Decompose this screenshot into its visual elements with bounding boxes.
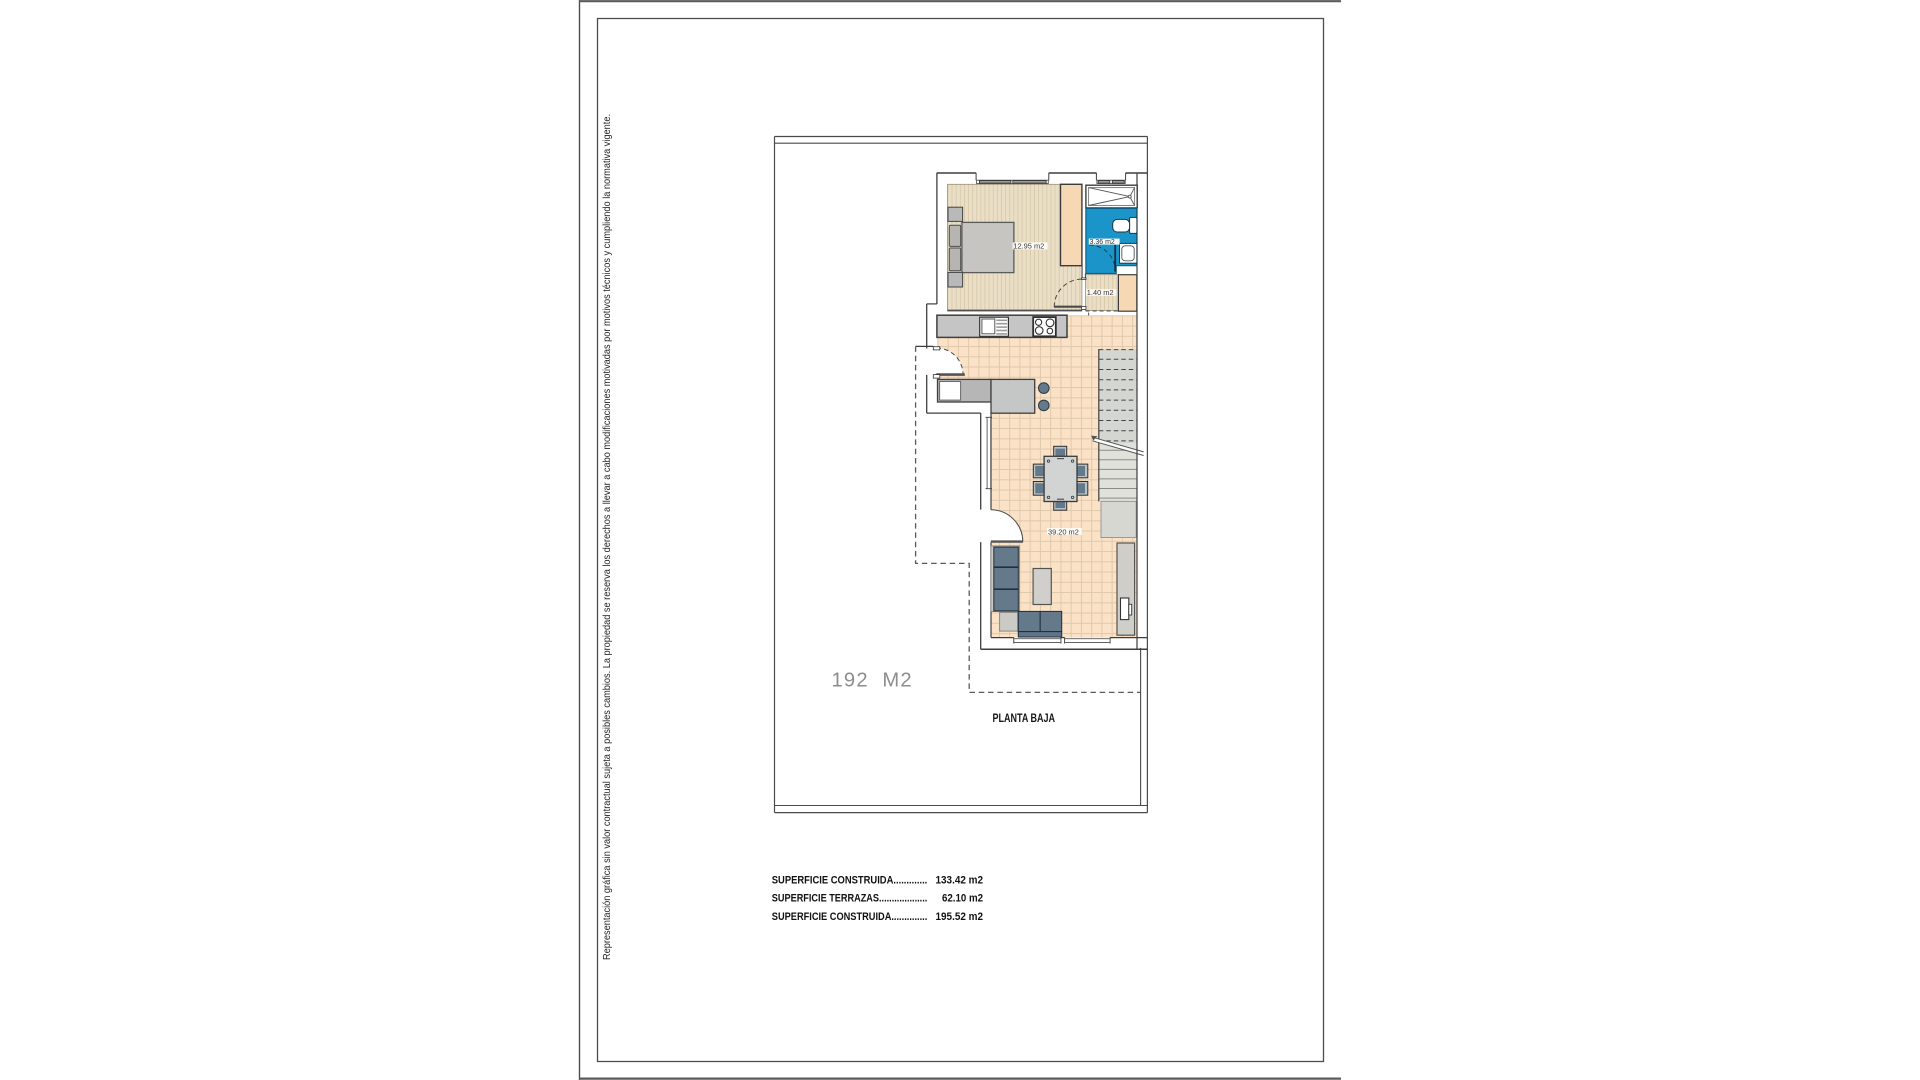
svg-text:133.42 m2: 133.42 m2 xyxy=(936,874,984,886)
svg-text:12.95 m2: 12.95 m2 xyxy=(1013,242,1044,251)
svg-text:62.10 m2: 62.10 m2 xyxy=(942,893,983,905)
svg-text:SUPERFICIE CONSTRUIDA.........: SUPERFICIE CONSTRUIDA............. xyxy=(772,874,928,886)
svg-text:3.36 m2: 3.36 m2 xyxy=(1090,239,1115,246)
svg-text:192 M2: 192 M2 xyxy=(832,669,913,691)
svg-text:39.20 m2: 39.20 m2 xyxy=(1048,527,1079,536)
svg-text:1.40 m2: 1.40 m2 xyxy=(1087,288,1114,297)
svg-text:SUPERFICIE TERRAZAS...........: SUPERFICIE TERRAZAS................... xyxy=(772,893,928,905)
svg-text:195.52 m2: 195.52 m2 xyxy=(936,911,984,923)
svg-text:Representación gráfica sin val: Representación gráfica sin valor contrac… xyxy=(602,114,613,960)
svg-text:SUPERFICIE CONSTRUIDA.........: SUPERFICIE CONSTRUIDA.............. xyxy=(772,911,928,923)
svg-text:PLANTA BAJA: PLANTA BAJA xyxy=(993,711,1056,725)
